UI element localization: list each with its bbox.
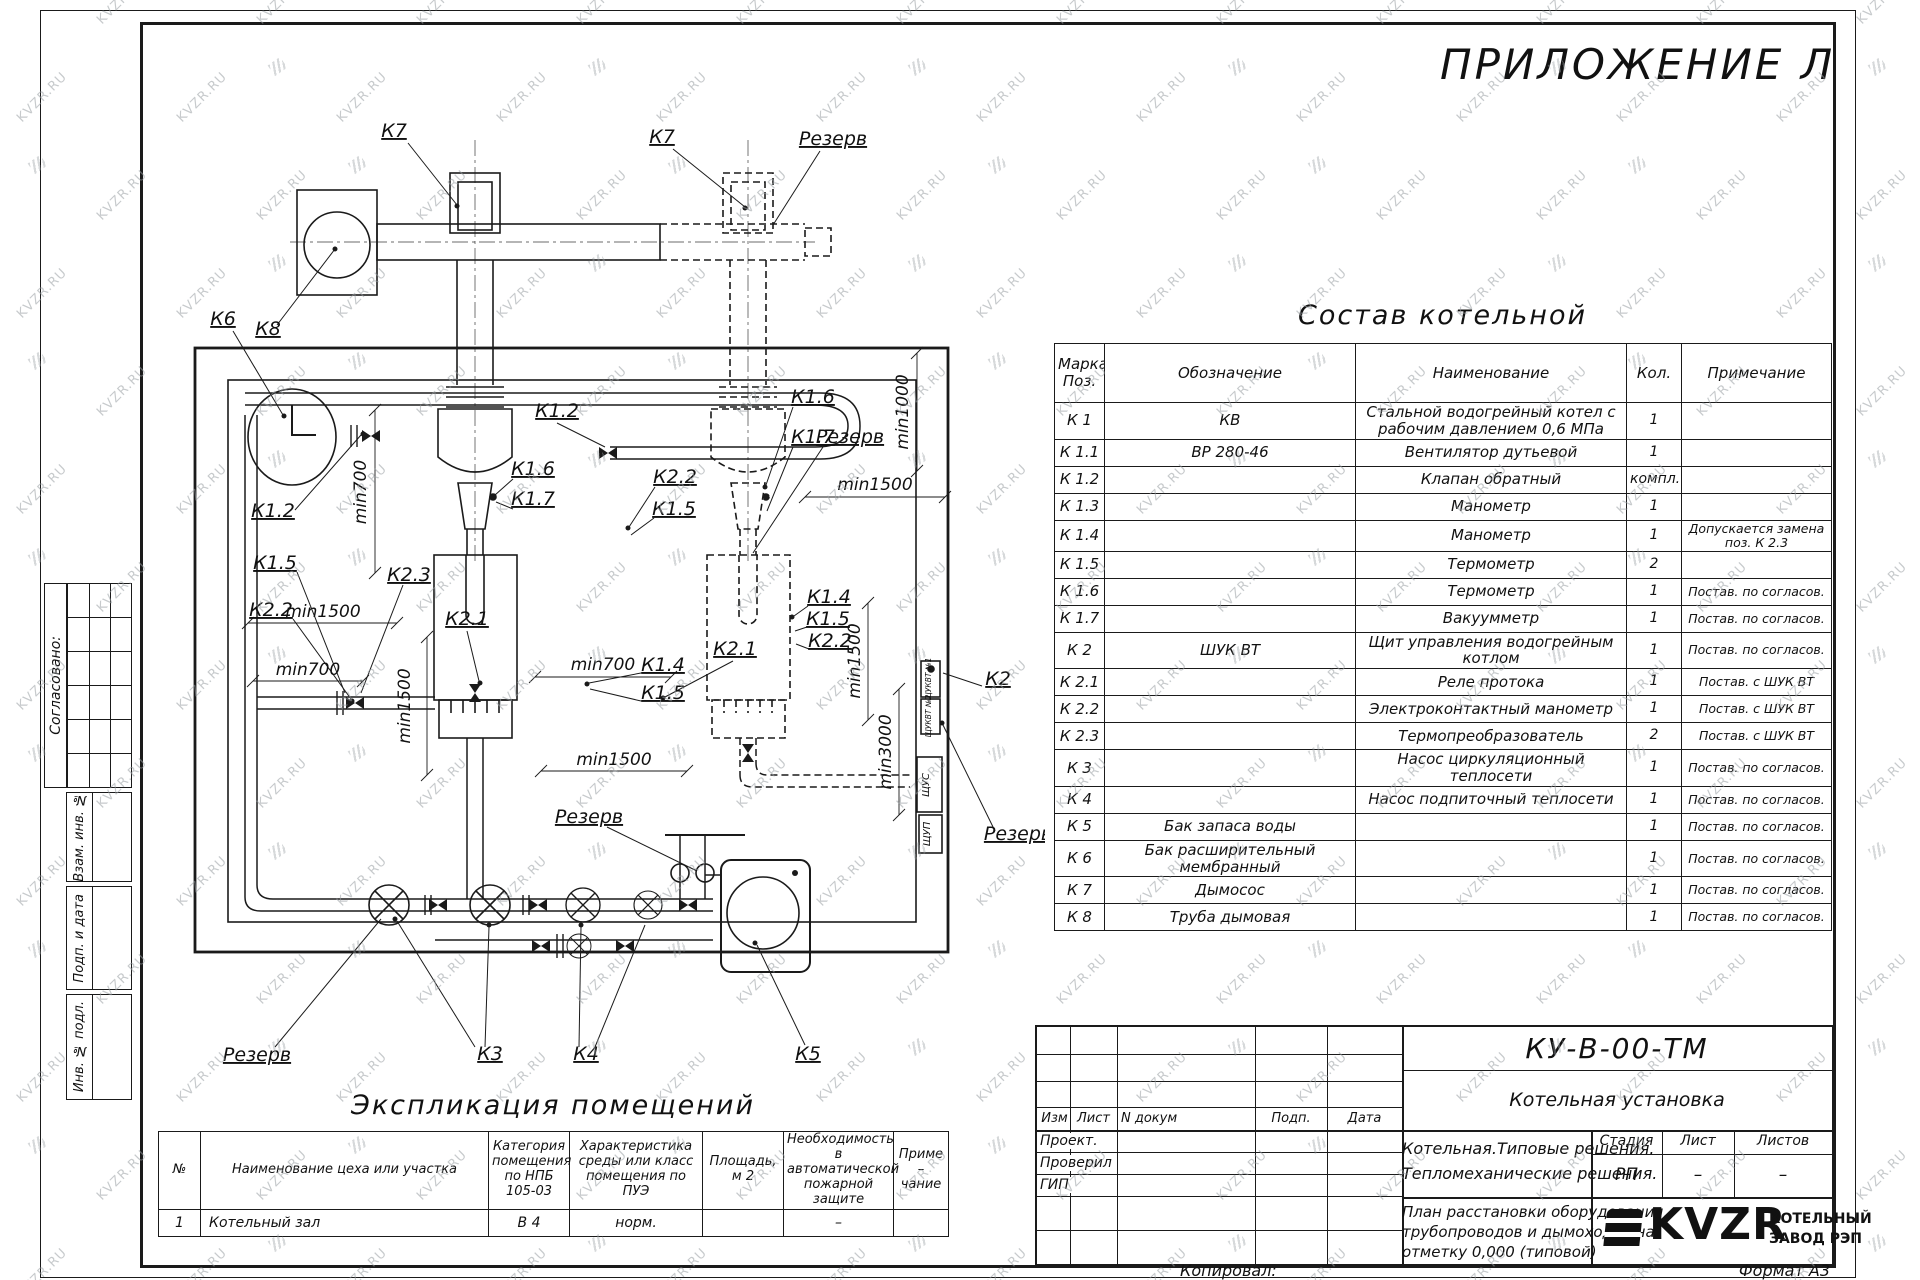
water-tank-k5 xyxy=(705,860,810,972)
composition-cell-sign: ВР 280-46 xyxy=(1105,439,1356,466)
plan-label-Резерв: Резерв xyxy=(799,128,867,150)
composition-cell-note: Постав. по согласов. xyxy=(1682,786,1832,813)
composition-cell-pos: К 1.2 xyxy=(1055,466,1105,493)
composition-cell-note xyxy=(1682,493,1832,520)
composition-header-cell: Наименование xyxy=(1356,344,1627,403)
plan-label-min1500: min1500 xyxy=(837,475,912,495)
composition-cell-note: Постав. по согласов. xyxy=(1682,904,1832,931)
explication-section: Экспликация помещений №Наименование цеха… xyxy=(158,1090,948,1237)
composition-cell-sign xyxy=(1105,669,1356,696)
composition-row: К 2.1Реле протока1Постав. с ШУК ВТ xyxy=(1055,669,1832,696)
composition-cell-pos: К 2.1 xyxy=(1055,669,1105,696)
composition-cell-sign: Дымосос xyxy=(1105,877,1356,904)
composition-cell-qty: 1 xyxy=(1627,840,1682,877)
watermark-text: KVZR.RU xyxy=(1854,167,1910,223)
plan-label-min1500: min1500 xyxy=(395,668,415,743)
composition-cell-qty: 1 xyxy=(1627,605,1682,632)
plan-label-min700: min700 xyxy=(351,460,371,525)
composition-cell-note: Постав. с ШУК ВТ xyxy=(1682,696,1832,723)
tb-col-izm: Изм xyxy=(1039,1111,1070,1126)
composition-cell-qty: 1 xyxy=(1627,632,1682,669)
explication-header-cell: Площадь, м 2 xyxy=(703,1132,784,1210)
plan-label-Резерв: Резерв xyxy=(984,823,1045,845)
tb-sheets-value: – xyxy=(1734,1165,1832,1185)
composition-cell-note: Постав. по согласов. xyxy=(1682,605,1832,632)
explication-title: Экспликация помещений xyxy=(158,1090,948,1121)
composition-cell-sign: КВ xyxy=(1105,403,1356,440)
composition-cell-qty: 2 xyxy=(1627,551,1682,578)
composition-cell-note xyxy=(1682,439,1832,466)
explication-header-cell: Приме – чание xyxy=(894,1132,949,1210)
composition-cell-qty: 1 xyxy=(1627,669,1682,696)
tb-col-data: Дата xyxy=(1327,1111,1402,1126)
appendix-title: ПРИЛОЖЕНИЕ Л xyxy=(1440,40,1820,89)
tb-sheet-label: Лист xyxy=(1662,1133,1734,1149)
plan-label-К1.7: К1.7 xyxy=(511,488,555,510)
composition-row: К 5Бак запаса воды1Постав. по согласов. xyxy=(1055,813,1832,840)
composition-cell-qty: 1 xyxy=(1627,750,1682,787)
composition-header-cell: Кол. xyxy=(1627,344,1682,403)
plan-drawing: К7К7РезервК8К6К1.2К1.6К1.7К1.6К1.7К2.2К1… xyxy=(105,85,1045,1075)
plan-label-min1500: min1500 xyxy=(845,623,865,698)
plan-label-ЩУКВТ-1: ЩУКВТ №1 xyxy=(924,658,933,701)
composition-cell-sign: ШУК ВТ xyxy=(1105,632,1356,669)
explication-header-cell: Наименование цеха или участка xyxy=(201,1132,489,1210)
composition-table: Марка Поз.ОбозначениеНаименованиеКол.При… xyxy=(1054,343,1832,931)
plan-label-К7: К7 xyxy=(381,120,407,142)
watermark-text: KVZR.RU xyxy=(1854,951,1910,1007)
tb-sheets-label: Листов xyxy=(1734,1133,1832,1149)
composition-cell-qty: 1 xyxy=(1627,696,1682,723)
tb-stage-value: РП xyxy=(1591,1165,1662,1185)
smoke-exhauster-k8 xyxy=(297,190,831,295)
plan-label-К2.3: К2.3 xyxy=(387,564,431,586)
tb-col-podp: Подп. xyxy=(1255,1111,1327,1126)
composition-cell-name: Манометр xyxy=(1356,493,1627,520)
composition-cell-note: Постав. с ШУК ВТ xyxy=(1682,723,1832,750)
composition-cell-note xyxy=(1682,403,1832,440)
plan-label-К2.1: К2.1 xyxy=(713,638,757,660)
composition-cell-sign: Бак расширительный мембранный xyxy=(1105,840,1356,877)
composition-cell-pos: К 1.3 xyxy=(1055,493,1105,520)
plan-label-К2.1: К2.1 xyxy=(445,608,489,630)
composition-row: К 1.4Манометр1Допускается замена поз. К … xyxy=(1055,520,1832,551)
composition-row: К 1.6Термометр1Постав. по согласов. xyxy=(1055,578,1832,605)
company-name: КОТЕЛЬНЫЙ ЗАВОД РЭП xyxy=(1769,1209,1872,1250)
watermark-glyph xyxy=(1868,1037,1888,1056)
composition-cell-pos: К 1.5 xyxy=(1055,551,1105,578)
composition-cell-name xyxy=(1356,904,1627,931)
composition-cell-note xyxy=(1682,551,1832,578)
tb-sheet-value: – xyxy=(1662,1165,1734,1185)
plan-label-К1.5: К1.5 xyxy=(641,682,685,704)
composition-cell-sign xyxy=(1105,605,1356,632)
watermark-glyph xyxy=(1868,841,1888,860)
tb-stage-label: Стадия xyxy=(1591,1133,1662,1149)
composition-cell-sign xyxy=(1105,466,1356,493)
explication-header-cell: № xyxy=(159,1132,201,1210)
composition-cell-pos: К 2.2 xyxy=(1055,696,1105,723)
plan-label-К7: К7 xyxy=(649,126,675,148)
composition-cell-name: Реле протока xyxy=(1356,669,1627,696)
composition-cell-pos: К 1.6 xyxy=(1055,578,1105,605)
composition-cell-note: Постав. по согласов. xyxy=(1682,632,1832,669)
composition-cell-qty: 2 xyxy=(1627,723,1682,750)
plan-label-К1.4: К1.4 xyxy=(807,586,851,608)
watermark-text: KVZR.RU xyxy=(1854,755,1910,811)
composition-cell-qty: 1 xyxy=(1627,493,1682,520)
tb-col-ndokum: N докум xyxy=(1117,1111,1259,1126)
drawing-sheet: ПРИЛОЖЕНИЕ Л Согласовано: Взам. инв. № П… xyxy=(0,0,1920,1280)
composition-cell-pos: К 1.4 xyxy=(1055,520,1105,551)
plan-label-К2: К2 xyxy=(985,668,1011,690)
composition-cell-sign xyxy=(1105,750,1356,787)
composition-cell-pos: К 1.7 xyxy=(1055,605,1105,632)
tb-desc-line1: Котельная.Типовые решения. xyxy=(1402,1139,1591,1158)
composition-cell-name: Электроконтактный манометр xyxy=(1356,696,1627,723)
plan-label-К1.4: К1.4 xyxy=(641,654,685,676)
kvzr-logo-icon xyxy=(1603,1209,1643,1251)
composition-cell-note: Постав. по согласов. xyxy=(1682,840,1832,877)
composition-header-cell: Обозначение xyxy=(1105,344,1356,403)
composition-cell-qty: 1 xyxy=(1627,813,1682,840)
composition-cell-qty: 1 xyxy=(1627,403,1682,440)
composition-row: К 1.1ВР 280-46Вентилятор дутьевой1 xyxy=(1055,439,1832,466)
composition-cell-qty: 1 xyxy=(1627,578,1682,605)
explication-cell: – xyxy=(784,1209,894,1236)
explication-header-cell: Необходимость в автоматической пожарной … xyxy=(784,1132,894,1210)
composition-cell-sign xyxy=(1105,578,1356,605)
composition-header-row: Марка Поз.ОбозначениеНаименованиеКол.При… xyxy=(1055,344,1832,403)
plan-label-К4: К4 xyxy=(573,1043,599,1065)
watermark-glyph xyxy=(1868,253,1888,272)
composition-cell-sign xyxy=(1105,493,1356,520)
tb-object-name: Котельная установка xyxy=(1402,1089,1832,1111)
composition-cell-note: Постав. по согласов. xyxy=(1682,877,1832,904)
plan-label-К1.2: К1.2 xyxy=(535,400,579,422)
composition-cell-qty: 1 xyxy=(1627,877,1682,904)
composition-cell-name: Насос циркуляционный теплосети xyxy=(1356,750,1627,787)
composition-cell-name: Стальной водогрейный котел с рабочим дав… xyxy=(1356,403,1627,440)
composition-header-cell: Марка Поз. xyxy=(1055,344,1105,403)
composition-cell-note: Постав. по согласов. xyxy=(1682,813,1832,840)
composition-cell-name: Манометр xyxy=(1356,520,1627,551)
plan-label-К3: К3 xyxy=(477,1043,503,1065)
explication-cell xyxy=(894,1209,949,1236)
composition-cell-note: Постав. по согласов. xyxy=(1682,578,1832,605)
composition-cell-sign xyxy=(1105,520,1356,551)
composition-cell-qty: компл. xyxy=(1627,466,1682,493)
plan-label-min1500: min1500 xyxy=(576,750,651,770)
explication-header-row: №Наименование цеха или участкаКатегория … xyxy=(159,1132,949,1210)
composition-cell-name xyxy=(1356,840,1627,877)
composition-row: К 3Насос циркуляционный теплосети1Постав… xyxy=(1055,750,1832,787)
tb-doc-number: КУ-В-00-ТМ xyxy=(1402,1032,1832,1065)
composition-row: К 1.7Вакуумметр1Постав. по согласов. xyxy=(1055,605,1832,632)
plan-label-К5: К5 xyxy=(795,1043,821,1065)
composition-cell-qty: 1 xyxy=(1627,786,1682,813)
composition-title: Состав котельной xyxy=(1054,300,1831,331)
composition-cell-pos: К 8 xyxy=(1055,904,1105,931)
tb-sheet-title3: отметку 0,000 (типовой) xyxy=(1402,1243,1591,1261)
plan-label-ЩУС: ЩУС xyxy=(921,773,932,797)
composition-row: К 6Бак расширительный мембранный1Постав.… xyxy=(1055,840,1832,877)
title-block: Изм Лист N докум Подп. Дата Проект. Пров… xyxy=(1035,1025,1834,1266)
watermark-text: KVZR.RU xyxy=(1854,559,1910,615)
company-logo-cell: KVZR КОТЕЛЬНЫЙ ЗАВОД РЭП xyxy=(1591,1197,1832,1264)
composition-row: К 2.2Электроконтактный манометр1Постав. … xyxy=(1055,696,1832,723)
composition-cell-sign xyxy=(1105,551,1356,578)
composition-row: К 1КВСтальной водогрейный котел с рабочи… xyxy=(1055,403,1832,440)
explication-cell: норм. xyxy=(570,1209,703,1236)
composition-cell-pos: К 7 xyxy=(1055,877,1105,904)
composition-cell-pos: К 2 xyxy=(1055,632,1105,669)
plan-label-К6: К6 xyxy=(210,308,236,330)
explication-cell xyxy=(703,1209,784,1236)
watermark-glyph xyxy=(1868,57,1888,76)
format-label: Формат А3 xyxy=(1720,1261,1830,1280)
watermark-text: KVZR.RU xyxy=(1854,0,1910,28)
composition-row: К 1.3Манометр1 xyxy=(1055,493,1832,520)
composition-cell-sign xyxy=(1105,723,1356,750)
plan-label-К1.5: К1.5 xyxy=(806,608,850,630)
tb-sheet-title1: План расстановки оборудования, xyxy=(1402,1203,1591,1221)
composition-cell-sign: Труба дымовая xyxy=(1105,904,1356,931)
composition-cell-name: Термометр xyxy=(1356,551,1627,578)
watermark-text: KVZR.RU xyxy=(1854,363,1910,419)
copied-label: Копировал: xyxy=(1180,1261,1277,1280)
boiler-k1-assembly xyxy=(434,173,517,738)
composition-cell-name: Вентилятор дутьевой xyxy=(1356,439,1627,466)
composition-row: К 2ШУК ВТЩит управления водогрейным котл… xyxy=(1055,632,1832,669)
plan-label-Резерв: Резерв xyxy=(555,806,623,828)
composition-cell-sign: Бак запаса воды xyxy=(1105,813,1356,840)
tb-desc-line2: Тепломеханические решения. xyxy=(1402,1164,1591,1183)
agreed-label: Согласовано: xyxy=(48,636,64,735)
explication-cell: 1 xyxy=(159,1209,201,1236)
plan-label-ЩУП: ЩУП xyxy=(922,821,933,846)
plan-label-min700: min700 xyxy=(571,655,636,675)
composition-cell-note: Постав. с ШУК ВТ xyxy=(1682,669,1832,696)
stamp-inv-podl: Инв. № подл. xyxy=(72,1001,87,1092)
composition-table-section: Состав котельной Марка Поз.ОбозначениеНа… xyxy=(1054,300,1831,931)
plan-label-min700: min700 xyxy=(276,660,341,680)
composition-cell-name: Клапан обратный xyxy=(1356,466,1627,493)
composition-cell-note: Допускается замена поз. К 2.3 xyxy=(1682,520,1832,551)
explication-table: №Наименование цеха или участкаКатегория … xyxy=(158,1131,949,1237)
composition-cell-pos: К 1 xyxy=(1055,403,1105,440)
composition-cell-qty: 1 xyxy=(1627,520,1682,551)
composition-cell-note xyxy=(1682,466,1832,493)
composition-cell-note: Постав. по согласов. xyxy=(1682,750,1832,787)
stamp-podp-data: Подп. и дата xyxy=(72,894,87,983)
plan-label-К8: К8 xyxy=(255,318,281,340)
composition-cell-pos: К 3 xyxy=(1055,750,1105,787)
explication-row: 1Котельный залВ 4норм.– xyxy=(159,1209,949,1236)
composition-cell-name: Насос подпиточный теплосети xyxy=(1356,786,1627,813)
composition-cell-name: Термометр xyxy=(1356,578,1627,605)
composition-cell-pos: К 5 xyxy=(1055,813,1105,840)
composition-cell-pos: К 2.3 xyxy=(1055,723,1105,750)
composition-cell-name xyxy=(1356,877,1627,904)
composition-row: К 4Насос подпиточный теплосети1Постав. п… xyxy=(1055,786,1832,813)
composition-cell-qty: 1 xyxy=(1627,439,1682,466)
tb-role-proekt: Проект. xyxy=(1040,1133,1114,1149)
composition-cell-name xyxy=(1356,813,1627,840)
watermark-glyph xyxy=(1868,645,1888,664)
composition-row: К 2.3Термопреобразователь2Постав. с ШУК … xyxy=(1055,723,1832,750)
composition-cell-name: Щит управления водогрейным котлом xyxy=(1356,632,1627,669)
stamp-vzam-inv: Взам. инв. № xyxy=(72,792,87,882)
explication-header-cell: Характеристика среды или класс помещения… xyxy=(570,1132,703,1210)
composition-cell-qty: 1 xyxy=(1627,904,1682,931)
plan-label-К1.6: К1.6 xyxy=(791,386,835,408)
kvzr-logo-text: KVZR xyxy=(1649,1199,1787,1250)
plan-label-К1.2: К1.2 xyxy=(251,500,295,522)
tb-role-gip: ГИП xyxy=(1040,1177,1114,1193)
composition-cell-pos: К 1.1 xyxy=(1055,439,1105,466)
composition-cell-pos: К 4 xyxy=(1055,786,1105,813)
plan-label-К2.2: К2.2 xyxy=(653,466,697,488)
plan-label-Резерв: Резерв xyxy=(223,1044,291,1066)
plan-label-min3000: min3000 xyxy=(876,714,896,789)
composition-row: К 7Дымосос1Постав. по согласов. xyxy=(1055,877,1832,904)
explication-header-cell: Категория помещения по НПБ 105-03 xyxy=(489,1132,570,1210)
tb-col-list: Лист xyxy=(1070,1111,1117,1126)
composition-cell-name: Вакуумметр xyxy=(1356,605,1627,632)
composition-row: К 1.2Клапан обратныйкомпл. xyxy=(1055,466,1832,493)
tb-role-proveril: Проверил xyxy=(1040,1155,1114,1171)
plan-label-К1.6: К1.6 xyxy=(511,458,555,480)
explication-cell: В 4 xyxy=(489,1209,570,1236)
plan-label-Резерв: Резерв xyxy=(816,426,884,448)
watermark-glyph xyxy=(1868,449,1888,468)
composition-cell-name: Термопреобразователь xyxy=(1356,723,1627,750)
explication-cell: Котельный зал xyxy=(201,1209,489,1236)
plan-label-К1.5: К1.5 xyxy=(652,498,696,520)
watermark-text: KVZR.RU xyxy=(1854,1147,1910,1203)
plan-label-К1.5: К1.5 xyxy=(253,552,297,574)
composition-row: К 8Труба дымовая1Постав. по согласов. xyxy=(1055,904,1832,931)
plan-label-min1500: min1500 xyxy=(285,602,360,622)
composition-cell-sign xyxy=(1105,696,1356,723)
composition-header-cell: Примечание xyxy=(1682,344,1832,403)
composition-cell-sign xyxy=(1105,786,1356,813)
composition-cell-pos: К 6 xyxy=(1055,840,1105,877)
composition-row: К 1.5Термометр2 xyxy=(1055,551,1832,578)
plan-label-min1000: min1000 xyxy=(893,374,913,449)
plan-label-ЩУКВТ-2: ЩУКВТ №2 xyxy=(924,694,933,737)
tb-sheet-title2: трубопроводов и дымоходов на xyxy=(1402,1223,1591,1241)
